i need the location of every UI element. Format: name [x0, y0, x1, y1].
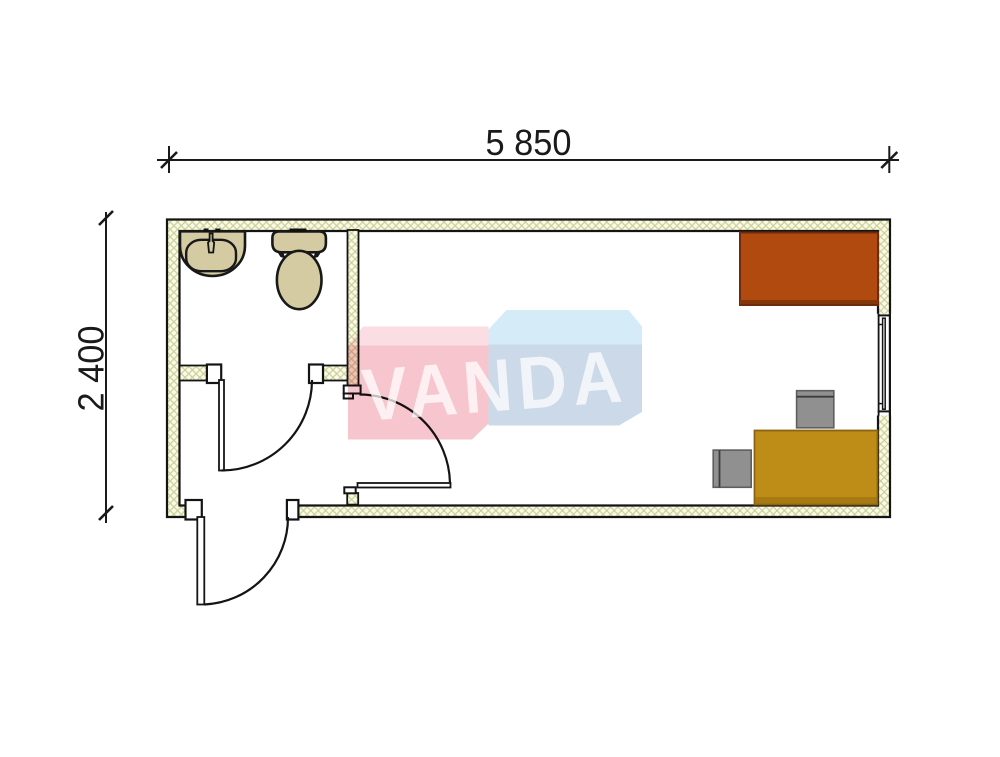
svg-text:2 400: 2 400 [71, 326, 112, 412]
svg-text:5 850: 5 850 [486, 122, 572, 163]
